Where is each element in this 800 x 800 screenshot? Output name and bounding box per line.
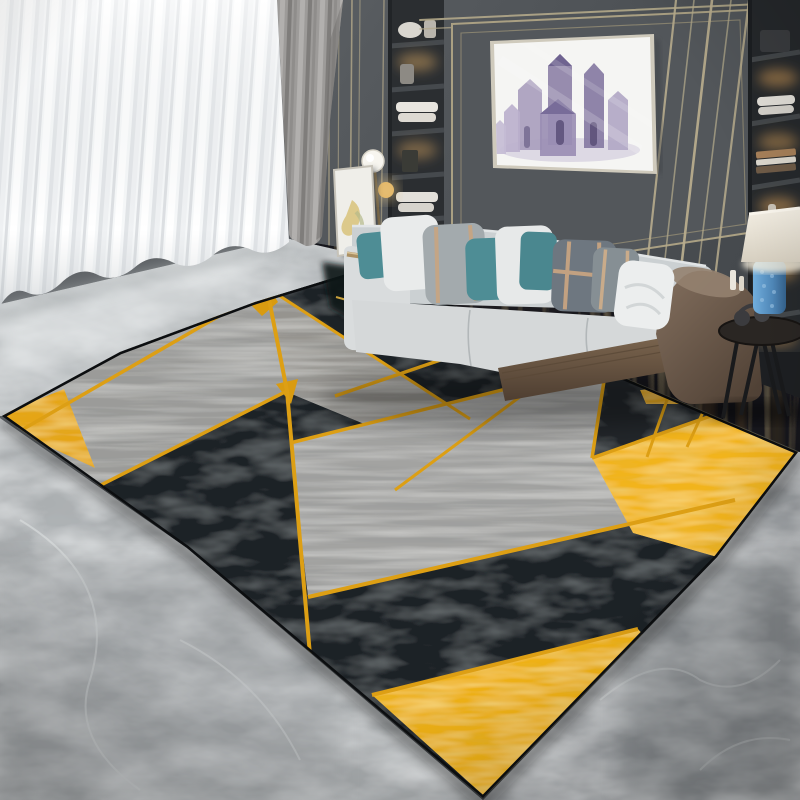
vignette (0, 0, 800, 800)
scene-canvas (0, 0, 800, 800)
living-room-photo (0, 0, 800, 800)
